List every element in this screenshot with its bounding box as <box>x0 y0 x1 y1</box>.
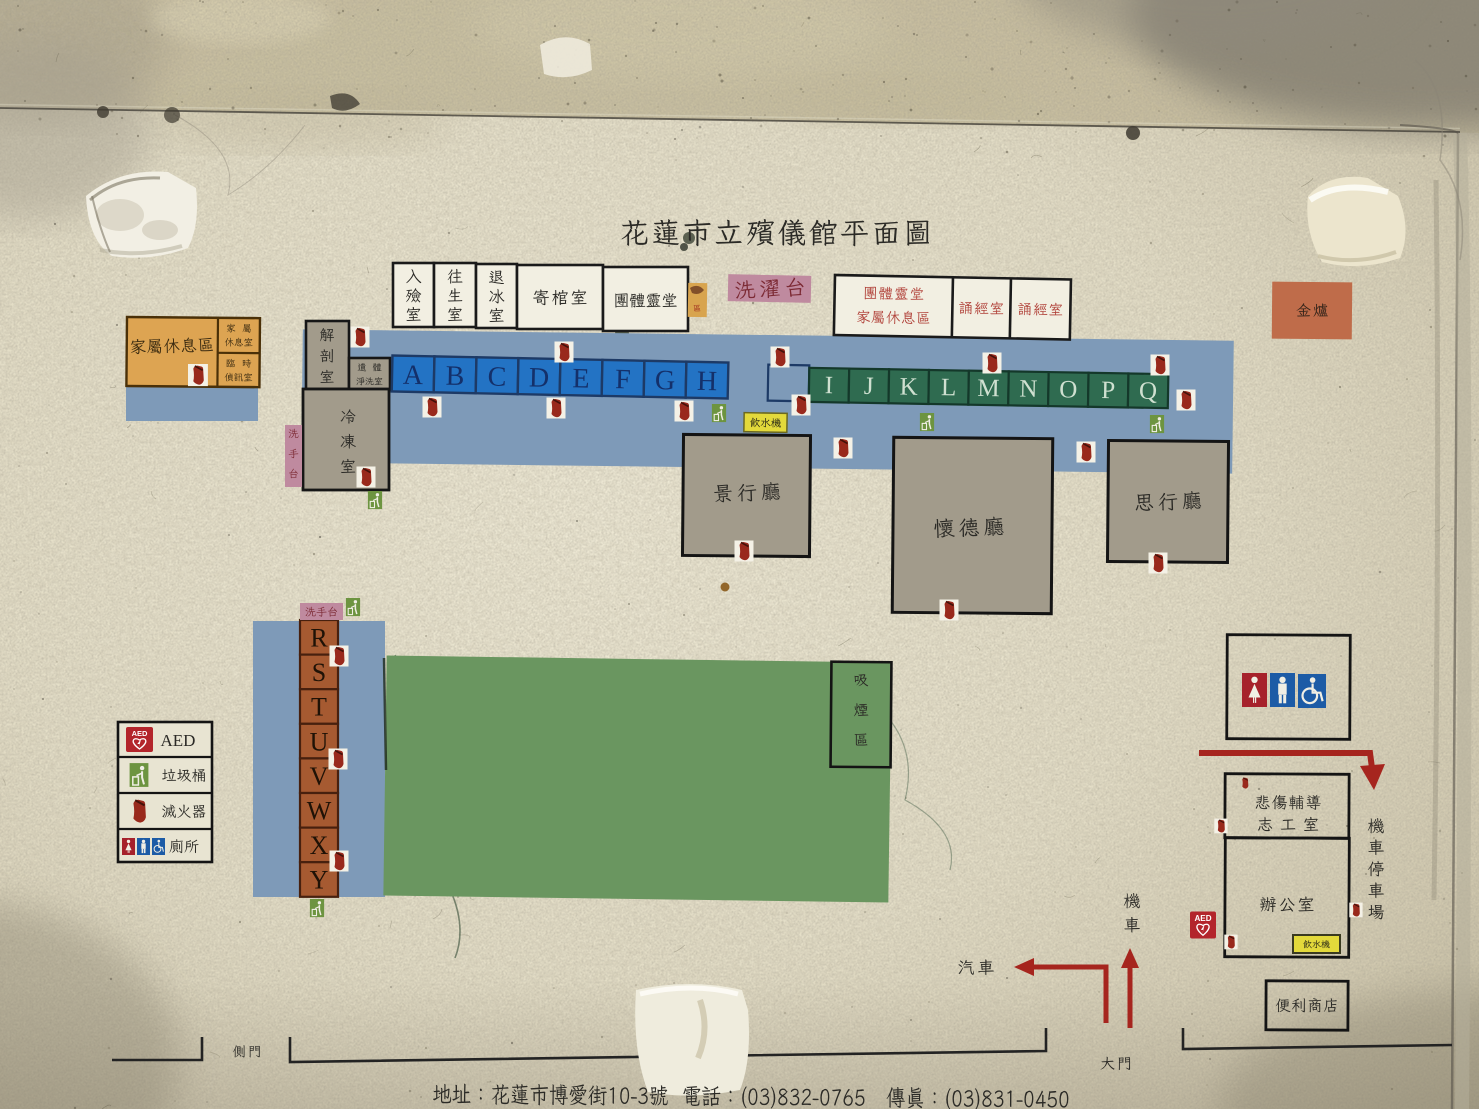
svg-text:P: P <box>1101 377 1115 404</box>
svg-text:Q: Q <box>1139 378 1158 405</box>
svg-text:C: C <box>487 361 506 392</box>
svg-text:B: B <box>445 361 464 392</box>
svg-text:M: M <box>977 375 1000 402</box>
svg-text:G: G <box>655 365 676 396</box>
svg-text:X: X <box>310 831 329 860</box>
svg-text:AED: AED <box>161 731 196 750</box>
svg-text:O: O <box>1059 376 1078 403</box>
svg-text:T: T <box>311 693 327 722</box>
svg-text:H: H <box>697 366 718 397</box>
svg-text:AED: AED <box>132 729 148 738</box>
svg-text:S: S <box>312 658 326 687</box>
svg-text:E: E <box>572 363 590 394</box>
svg-text:R: R <box>310 624 328 653</box>
svg-text:I: I <box>825 372 834 399</box>
svg-text:Y: Y <box>310 866 329 895</box>
svg-text:D: D <box>529 362 550 393</box>
svg-text:A: A <box>403 360 425 391</box>
svg-text:F: F <box>615 364 631 395</box>
svg-text:N: N <box>1019 376 1038 403</box>
svg-text:AED: AED <box>1194 914 1211 923</box>
svg-text:V: V <box>310 762 329 791</box>
svg-text:J: J <box>864 373 874 400</box>
svg-text:W: W <box>307 797 332 826</box>
svg-text:K: K <box>899 373 918 400</box>
svg-text:U: U <box>310 727 329 756</box>
svg-text:L: L <box>941 374 957 401</box>
